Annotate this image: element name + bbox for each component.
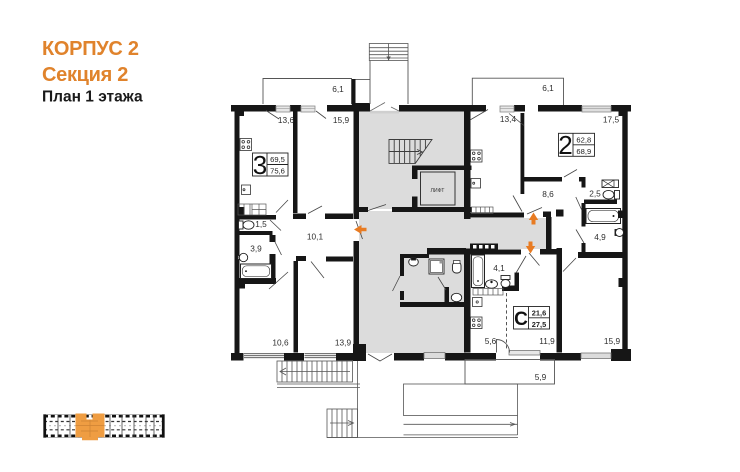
svg-text:6,1: 6,1 <box>332 84 344 94</box>
svg-text:27,5: 27,5 <box>532 320 546 329</box>
svg-text:3,9: 3,9 <box>250 244 262 254</box>
svg-text:69,5: 69,5 <box>270 155 285 164</box>
svg-text:13,4: 13,4 <box>500 114 517 124</box>
svg-text:68,9: 68,9 <box>576 147 591 156</box>
svg-text:3: 3 <box>253 150 267 180</box>
svg-text:13,6: 13,6 <box>278 115 295 125</box>
svg-text:Секция 2: Секция 2 <box>42 64 128 86</box>
svg-text:62,8: 62,8 <box>576 136 591 145</box>
svg-text:2,5: 2,5 <box>589 189 601 199</box>
svg-text:5,9: 5,9 <box>535 372 547 382</box>
svg-text:10,6: 10,6 <box>272 338 289 348</box>
svg-text:2: 2 <box>558 130 572 160</box>
svg-text:15,9: 15,9 <box>604 336 621 346</box>
svg-text:21,6: 21,6 <box>532 309 546 318</box>
svg-text:С: С <box>514 309 528 330</box>
svg-text:ЛИФТ: ЛИФТ <box>431 188 446 194</box>
svg-text:17,5: 17,5 <box>603 115 620 125</box>
svg-text:6,1: 6,1 <box>542 83 554 93</box>
svg-text:КОРПУС 2: КОРПУС 2 <box>42 38 139 60</box>
svg-text:5,6: 5,6 <box>485 336 497 346</box>
svg-text:План 1 этажа: План 1 этажа <box>42 89 143 106</box>
svg-text:8,6: 8,6 <box>542 189 554 199</box>
svg-text:75,6: 75,6 <box>270 167 285 176</box>
svg-text:11,9: 11,9 <box>539 336 555 346</box>
svg-text:4,9: 4,9 <box>594 232 606 242</box>
svg-text:1,5: 1,5 <box>255 219 267 229</box>
svg-text:15,9: 15,9 <box>333 115 350 125</box>
svg-text:4,1: 4,1 <box>493 263 505 273</box>
svg-text:10,1: 10,1 <box>307 232 324 242</box>
svg-text:13,9: 13,9 <box>335 338 352 348</box>
